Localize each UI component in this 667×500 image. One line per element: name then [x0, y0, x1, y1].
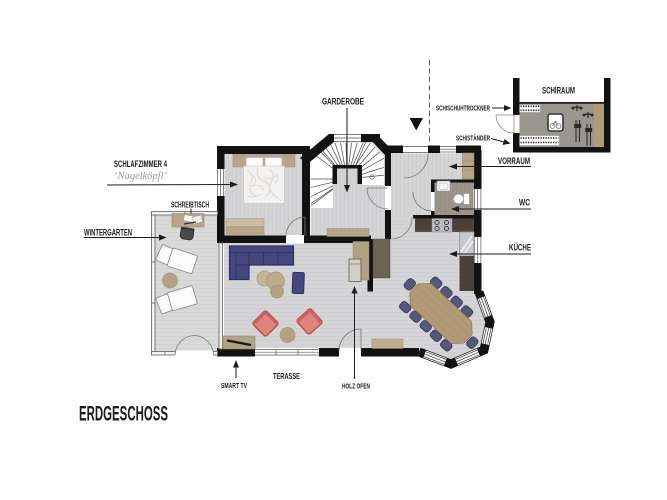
- svg-text:HOLZ OFEN: HOLZ OFEN: [342, 382, 370, 391]
- svg-text:SCHLAFZIMMER 4: SCHLAFZIMMER 4: [114, 159, 167, 170]
- svg-text:ERDGESCHOSS: ERDGESCHOSS: [79, 403, 168, 426]
- svg-text:VORRAUM: VORRAUM: [498, 156, 530, 166]
- svg-text:KÜCHE: KÜCHE: [509, 243, 531, 253]
- svg-text:GARDEROBE: GARDEROBE: [322, 97, 364, 107]
- svg-text:TERASSE: TERASSE: [273, 371, 300, 381]
- svg-text:SMART TV: SMART TV: [221, 381, 247, 390]
- svg-text:SCHISCHUHTROCKNER: SCHISCHUHTROCKNER: [436, 106, 490, 113]
- svg-text:‘Nagelköpfl’: ‘Nagelköpfl’: [114, 170, 167, 182]
- svg-text:WINTERGARTEN: WINTERGARTEN: [84, 228, 132, 238]
- svg-text:SCHIRAUM: SCHIRAUM: [542, 86, 575, 96]
- svg-text:WC: WC: [519, 198, 530, 208]
- svg-text:SCHREIBTISCH: SCHREIBTISCH: [171, 201, 209, 210]
- svg-text:SCHISTÄNDER: SCHISTÄNDER: [456, 135, 490, 143]
